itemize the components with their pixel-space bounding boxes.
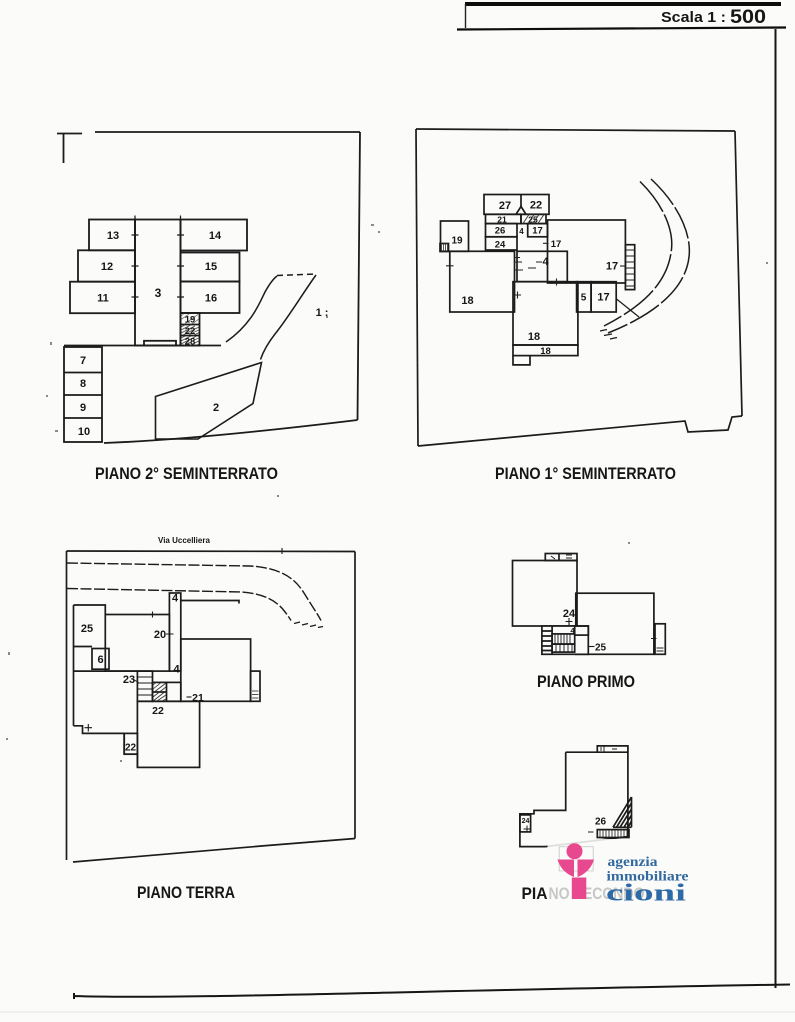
svg-text:27: 27 — [499, 200, 511, 212]
svg-text:19: 19 — [185, 315, 196, 326]
svg-text:PIANO 2° SEMINTERRATO: PIANO 2° SEMINTERRATO — [95, 464, 278, 483]
svg-text:21: 21 — [497, 215, 507, 225]
svg-text:25: 25 — [528, 215, 538, 225]
svg-text:11: 11 — [97, 293, 109, 305]
svg-text:PIANO TERRA: PIANO TERRA — [137, 883, 235, 902]
svg-text:10: 10 — [78, 426, 90, 438]
svg-text:4: 4 — [172, 593, 179, 605]
svg-text:28: 28 — [185, 337, 196, 348]
svg-text:17: 17 — [551, 239, 562, 250]
svg-text:12: 12 — [101, 261, 113, 273]
svg-text:17: 17 — [606, 261, 618, 273]
svg-text:21: 21 — [192, 692, 204, 704]
svg-text:20: 20 — [154, 629, 166, 641]
svg-text:PIANO PRIMO: PIANO PRIMO — [537, 672, 635, 691]
svg-text:19: 19 — [451, 236, 463, 247]
svg-text:26: 26 — [495, 226, 506, 237]
svg-text:18: 18 — [540, 346, 551, 357]
svg-text:Via Uccelliera: Via Uccelliera — [158, 536, 210, 545]
svg-text:Scala 1 :: Scala 1 : — [661, 9, 726, 26]
svg-text:24: 24 — [563, 608, 576, 620]
svg-text:7: 7 — [80, 355, 86, 367]
svg-text:22: 22 — [152, 705, 164, 717]
svg-text:22: 22 — [530, 200, 542, 212]
svg-text:22: 22 — [185, 326, 196, 337]
svg-text:4: 4 — [519, 227, 524, 236]
svg-text:9: 9 — [80, 402, 86, 414]
svg-text:8: 8 — [80, 378, 86, 390]
svg-text:26: 26 — [595, 817, 607, 828]
svg-text:agenzia: agenzia — [608, 854, 658, 869]
svg-text:2: 2 — [213, 402, 219, 414]
svg-text:24: 24 — [495, 240, 506, 251]
svg-text:23: 23 — [123, 674, 135, 686]
svg-text:PIA: PIA — [522, 884, 548, 903]
svg-text:cioni: cioni — [606, 881, 687, 907]
svg-text:4: 4 — [173, 664, 180, 676]
svg-text:25: 25 — [595, 643, 607, 654]
svg-text:22: 22 — [125, 743, 137, 754]
svg-text:3: 3 — [155, 286, 162, 300]
svg-text:16: 16 — [205, 293, 217, 305]
svg-text:17: 17 — [532, 226, 543, 237]
svg-text:25: 25 — [81, 623, 93, 635]
svg-text:5: 5 — [581, 293, 587, 304]
svg-text:15: 15 — [205, 261, 217, 273]
svg-text:17: 17 — [597, 292, 609, 304]
svg-text:13: 13 — [107, 230, 119, 242]
svg-text:4: 4 — [542, 256, 549, 268]
svg-text:6: 6 — [97, 654, 103, 666]
svg-text:500: 500 — [730, 7, 766, 28]
svg-text:PIANO 1° SEMINTERRATO: PIANO 1° SEMINTERRATO — [495, 464, 676, 483]
svg-text:18: 18 — [528, 331, 540, 343]
svg-text:18: 18 — [461, 295, 473, 307]
svg-text:14: 14 — [209, 230, 222, 242]
svg-text:24: 24 — [522, 818, 530, 825]
